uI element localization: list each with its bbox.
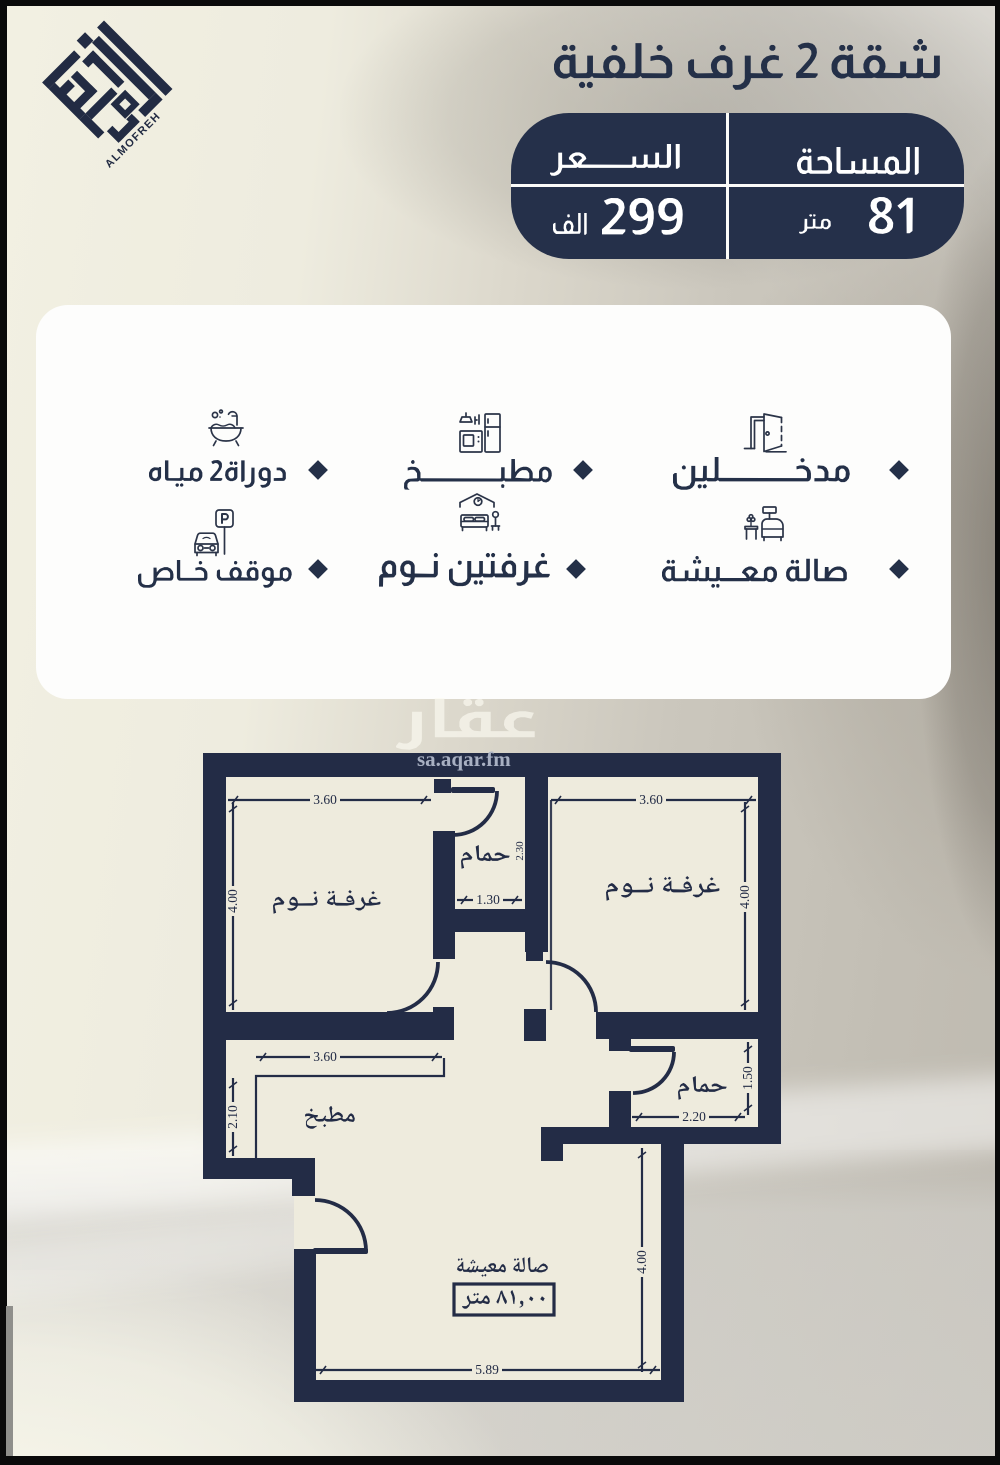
- svg-text:3.60: 3.60: [313, 1049, 337, 1064]
- svg-text:4.00: 4.00: [225, 889, 240, 913]
- svg-text:3.60: 3.60: [639, 792, 663, 807]
- svg-text:4.00: 4.00: [737, 885, 752, 909]
- svg-text:1.30: 1.30: [476, 892, 500, 907]
- svg-text:4.00: 4.00: [634, 1250, 649, 1274]
- svg-text:3.60: 3.60: [313, 792, 337, 807]
- svg-text:5.89: 5.89: [475, 1362, 499, 1377]
- svg-text:2.30: 2.30: [514, 841, 526, 861]
- svg-text:1.50: 1.50: [740, 1066, 755, 1090]
- svg-text:2.20: 2.20: [682, 1109, 706, 1124]
- svg-text:2.10: 2.10: [225, 1105, 240, 1129]
